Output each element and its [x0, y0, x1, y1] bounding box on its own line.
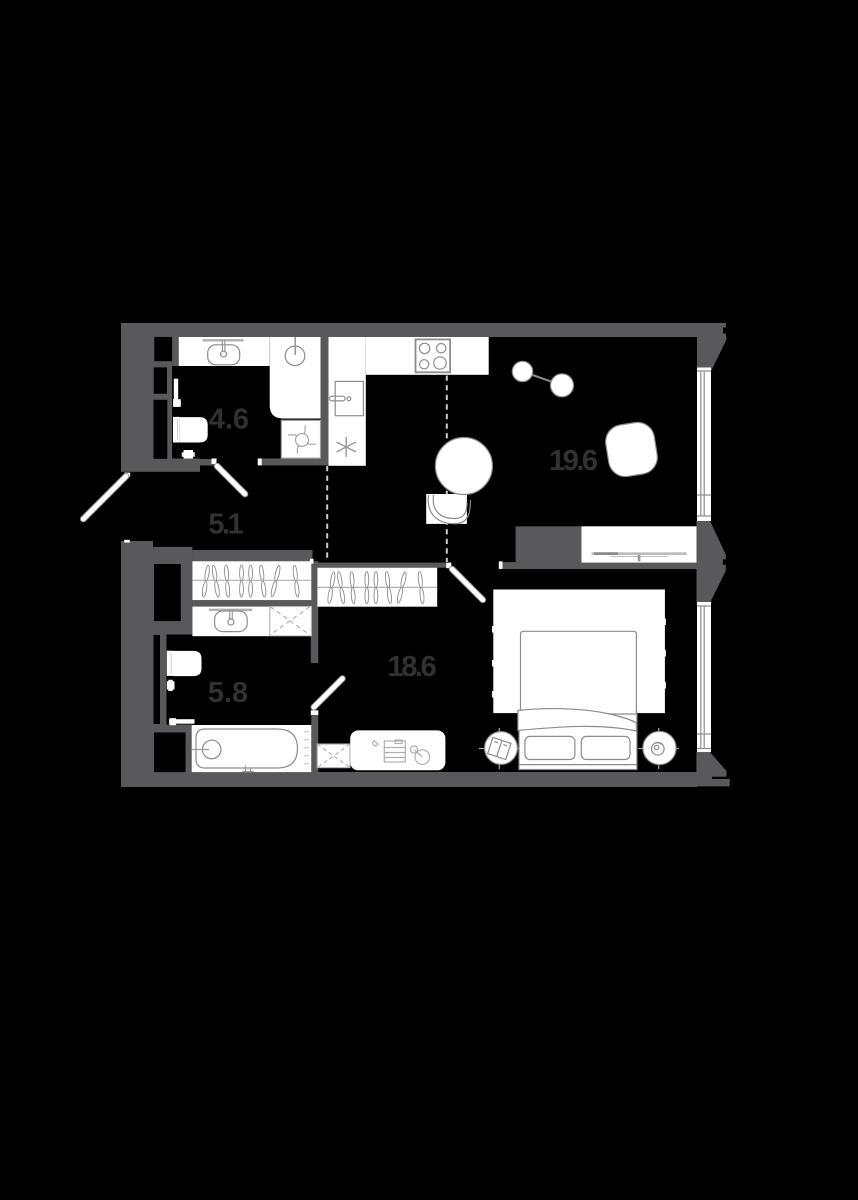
svg-text:19.6: 19.6 [549, 445, 598, 477]
svg-text:4.6: 4.6 [209, 404, 249, 436]
svg-text:18.6: 18.6 [388, 651, 437, 683]
svg-text:5.1: 5.1 [208, 509, 243, 541]
svg-text:5.8: 5.8 [208, 677, 248, 709]
